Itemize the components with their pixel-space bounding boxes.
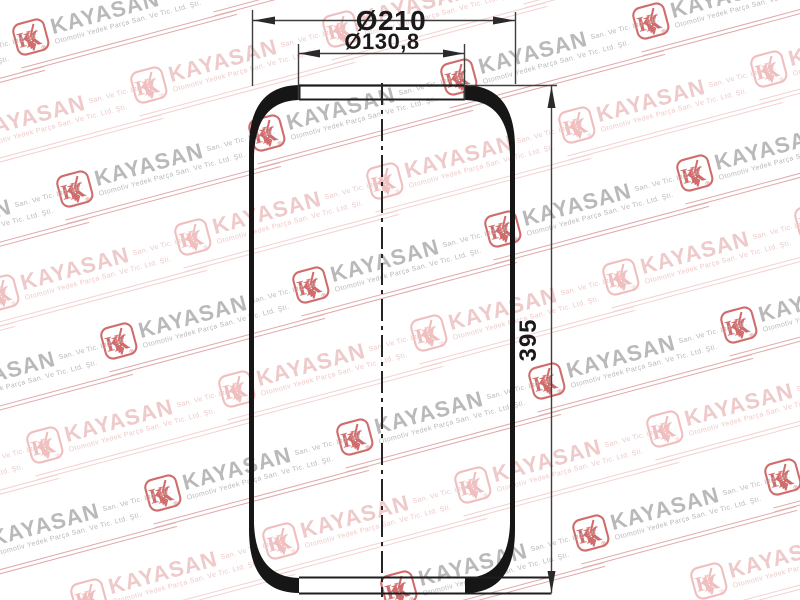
dim-inner-diameter-label: Ø130,8 [344, 29, 419, 54]
dim-outer-arrow-left [253, 17, 275, 25]
dim-height-arrow-bottom [548, 571, 556, 593]
drawing-canvas: KK®KAYASANSan. Ve Tic. Ltd. Şti.Otomotiv… [0, 0, 800, 600]
dim-height-label: 395 [515, 318, 542, 361]
bellows-right-wall [465, 85, 515, 593]
dim-inner-arrow-right [443, 50, 464, 58]
technical-drawing: Ø210 Ø130,8 395 [0, 0, 800, 600]
dim-inner-arrow-left [299, 50, 320, 58]
dim-height-arrow-top [548, 86, 556, 108]
dim-outer-arrow-right [493, 17, 515, 25]
bellows-left-wall [249, 85, 299, 593]
